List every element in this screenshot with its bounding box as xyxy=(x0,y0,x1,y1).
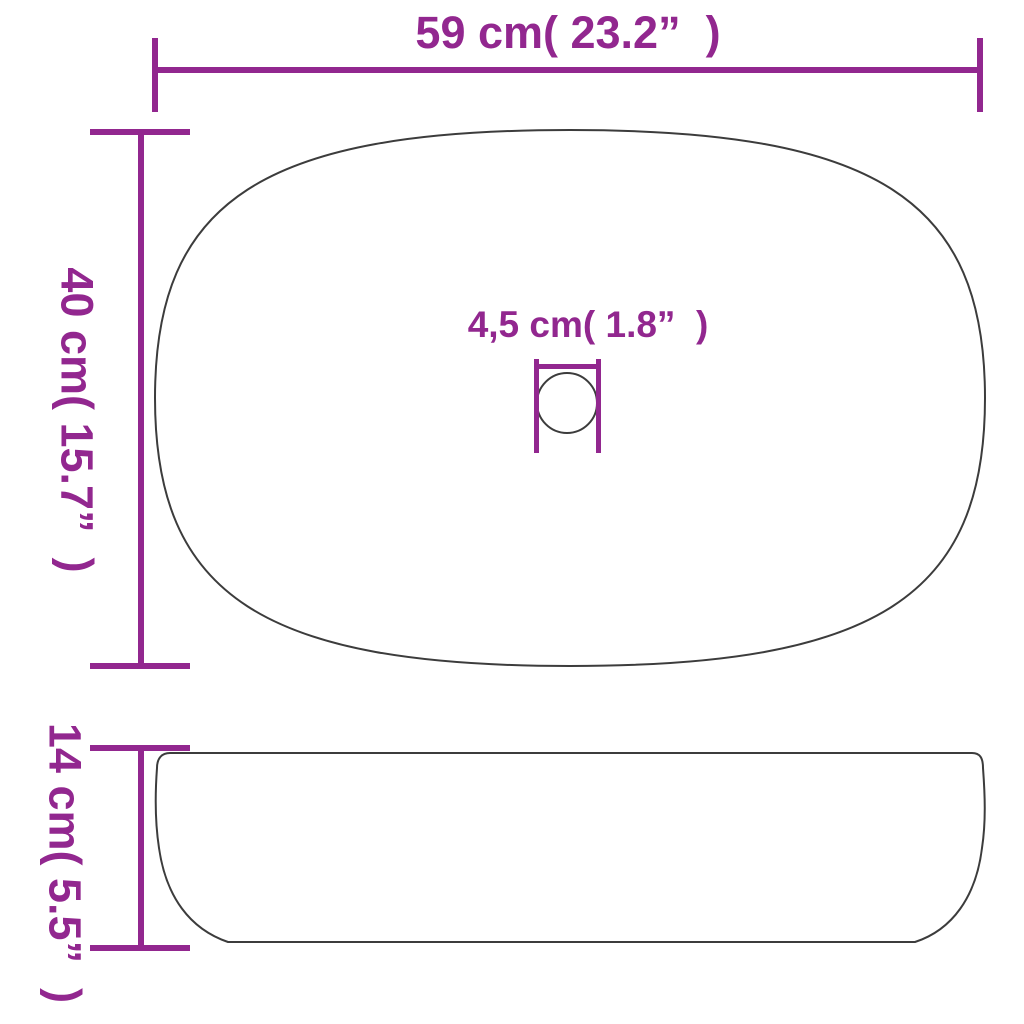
depth-dimension-tick-top xyxy=(90,129,190,135)
height-dimension-tick-top xyxy=(90,745,190,751)
depth-dimension-tick-bottom xyxy=(90,663,190,669)
drain-dimension-tick-left xyxy=(534,359,539,453)
side-view-outline xyxy=(156,753,985,942)
depth-dimension-label: 40 cm( 15.7” ) xyxy=(55,267,100,572)
dimension-diagram: 59 cm( 23.2” ) 40 cm( 15.7” ) 4,5 cm( 1.… xyxy=(0,0,1024,1024)
width-dimension-line xyxy=(155,67,980,73)
top-view-outline xyxy=(155,130,985,666)
height-dimension-tick-bottom xyxy=(90,945,190,951)
product-outlines xyxy=(0,0,1024,1024)
width-dimension-tick-left xyxy=(152,38,158,112)
drain-dimension-line xyxy=(534,364,601,369)
depth-dimension-line xyxy=(138,130,144,667)
drain-dimension-tick-right xyxy=(596,359,601,453)
width-dimension-label: 59 cm( 23.2” ) xyxy=(415,10,720,55)
height-dimension-line xyxy=(138,748,144,948)
height-dimension-label: 14 cm( 5.5” ) xyxy=(43,723,88,1003)
drain-dimension-label: 4,5 cm( 1.8” ) xyxy=(468,306,709,343)
width-dimension-tick-right xyxy=(977,38,983,112)
drain-hole-outline xyxy=(537,373,597,433)
